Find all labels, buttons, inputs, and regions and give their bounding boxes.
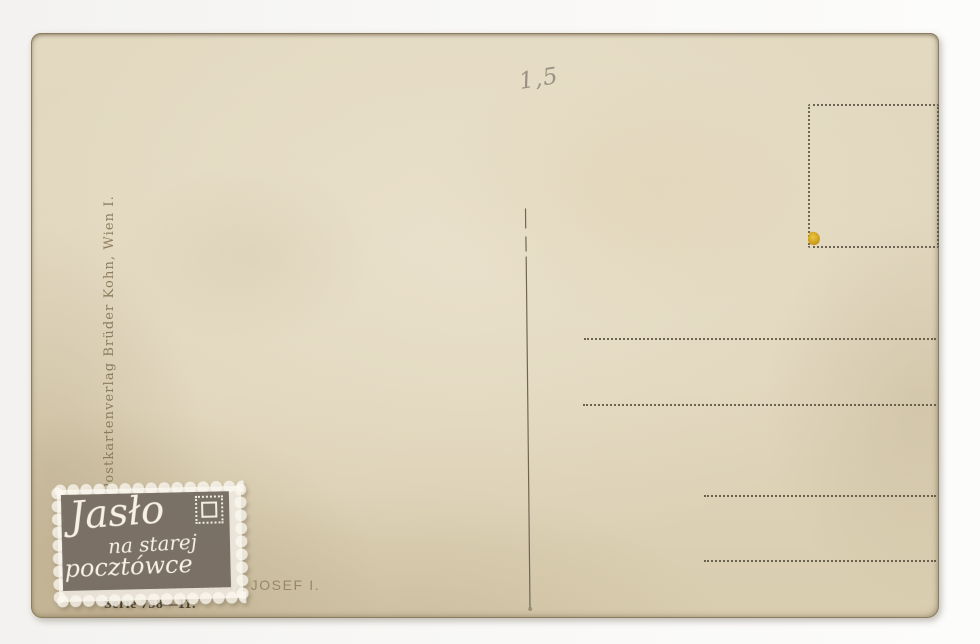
address-line (584, 338, 936, 340)
stamp-icon-inner-square (201, 501, 217, 517)
divider-line (518, 204, 538, 620)
address-line (704, 560, 936, 562)
scan-background: Postkartenverlag Brüder Kohn, Wien I. 1,… (0, 0, 980, 644)
divider-end-blot (528, 607, 532, 611)
watermark-title: Jasło (68, 490, 166, 536)
watermark-panel: Jasło na starej pocztówce (61, 491, 231, 591)
watermark-subtitle-2: pocztówce (64, 552, 193, 581)
address-line (583, 404, 936, 406)
handwritten-note: 1,5 (517, 63, 560, 95)
address-line (704, 495, 936, 497)
watermark-stamp: Jasło na starej pocztówce (51, 480, 250, 608)
publisher-imprint: Postkartenverlag Brüder Kohn, Wien I. (102, 200, 117, 492)
stamp-box (808, 104, 939, 248)
stamp-icon (195, 495, 224, 524)
stamp-residue-mark (807, 231, 821, 246)
